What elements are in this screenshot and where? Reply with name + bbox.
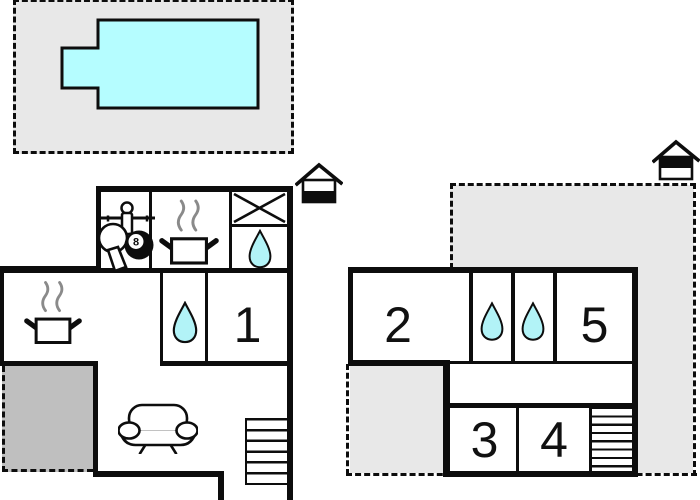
sofa-icon <box>118 402 198 454</box>
wall-segment <box>511 273 515 363</box>
terrace-dashed-border-left-lower <box>346 364 349 475</box>
water-drop-icon <box>479 299 505 344</box>
eight-ball-label: 8 <box>133 237 139 249</box>
wall-segment <box>469 273 473 363</box>
cooking-pot-icon <box>158 197 220 267</box>
wall-segment <box>218 471 224 500</box>
wall-segment <box>589 408 592 471</box>
terrace-dashed-border-top <box>450 183 696 186</box>
wall-segment <box>443 360 450 477</box>
room-number-5: 5 <box>557 273 632 368</box>
staircase-ground-floor <box>245 418 287 485</box>
wall-segment <box>0 266 96 273</box>
room-number-2: 2 <box>353 273 443 368</box>
water-drop-icon <box>247 228 273 270</box>
wall-segment <box>96 186 293 192</box>
upper-floor-terrace <box>450 185 694 268</box>
wall-segment <box>232 224 287 227</box>
eight-ball-icon: 8 <box>122 228 156 262</box>
terrace-dashed-border-right <box>693 183 696 476</box>
room-number-1: 1 <box>208 273 287 369</box>
upper-floor-terrace-right <box>638 268 693 473</box>
cooking-pot-icon <box>23 277 83 348</box>
upper-floor-terrace-lower <box>350 366 443 473</box>
water-drop-icon <box>171 299 199 346</box>
swimming-pool-icon <box>55 12 265 115</box>
ground-floor-terrace <box>2 366 93 472</box>
floor-plan-canvas: 8 1 2 5 3 4 <box>0 0 700 500</box>
staircase-upper-floor <box>592 407 632 474</box>
wall-segment <box>93 471 224 477</box>
house-upper-level-icon <box>652 139 700 181</box>
wall-segment <box>0 361 98 366</box>
wall-segment <box>0 266 4 366</box>
wall-segment <box>229 191 232 271</box>
water-drop-icon <box>520 299 546 344</box>
wall-segment <box>632 267 638 477</box>
wall-segment <box>93 361 98 476</box>
room-number-3: 3 <box>453 408 516 471</box>
terrace-dashed-border-left-upper <box>450 183 453 269</box>
house-lower-level-icon <box>295 162 343 204</box>
wall-segment <box>287 186 293 500</box>
wall-segment <box>160 273 163 366</box>
room-number-4: 4 <box>519 408 589 471</box>
crossed-square-icon <box>233 193 286 223</box>
wall-segment <box>443 471 638 477</box>
